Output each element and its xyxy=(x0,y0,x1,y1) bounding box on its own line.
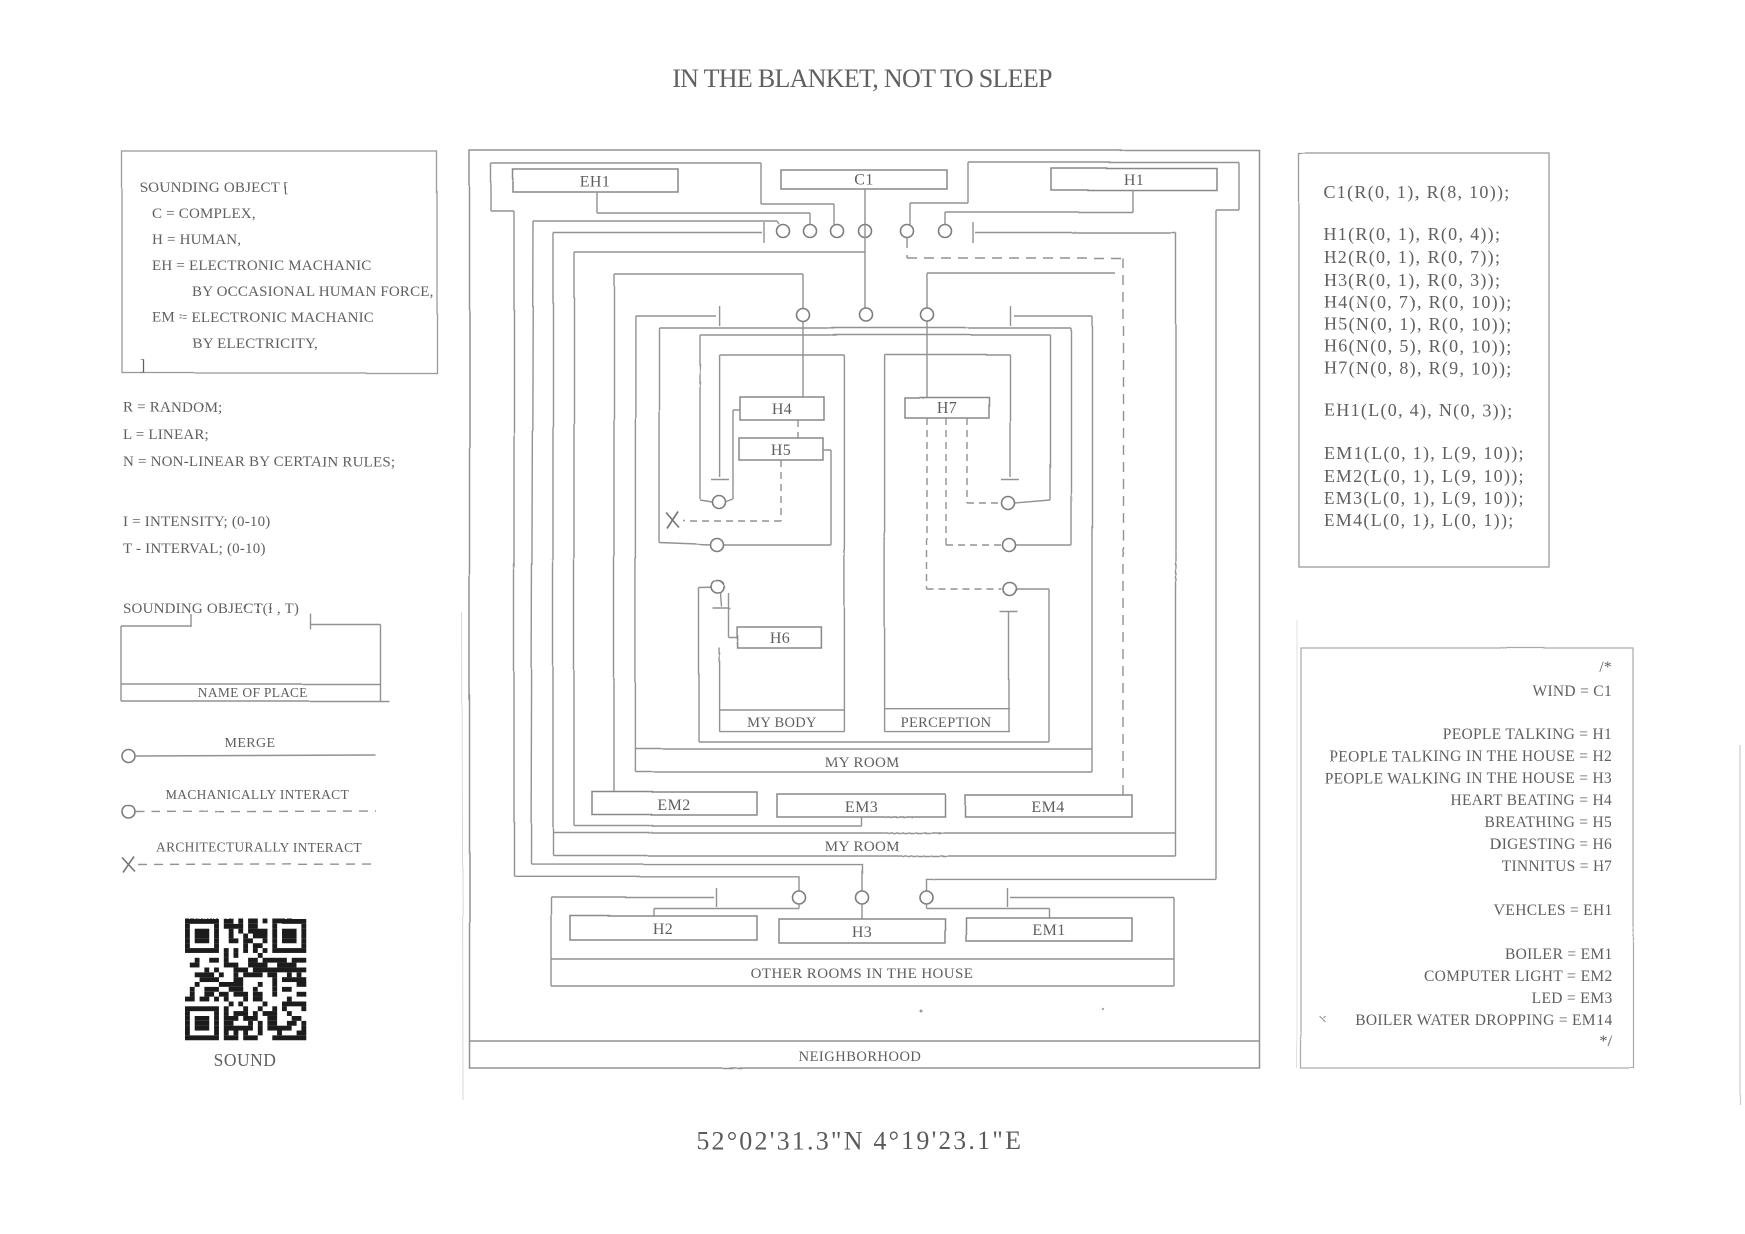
svg-text:PEOPLE WALKING IN THE HOUSE =: PEOPLE WALKING IN THE HOUSE = H3 xyxy=(1325,770,1612,787)
svg-text:OTHER ROOMS IN THE HOUSE: OTHER ROOMS IN THE HOUSE xyxy=(751,966,974,982)
svg-text:N = NON-LINEAR BY CERTAIN RULE: N = NON-LINEAR BY CERTAIN RULES; xyxy=(123,454,395,470)
svg-text:IN THE BLANKET, NOT TO SLEEP: IN THE BLANKET, NOT TO SLEEP xyxy=(672,64,1052,93)
svg-text:H3(R(0, 1), R(0, 3));: H3(R(0, 1), R(0, 3)); xyxy=(1324,270,1501,291)
svg-text:]: ] xyxy=(140,358,145,375)
svg-text:R = RANDOM;: R = RANDOM; xyxy=(123,400,222,416)
svg-text:BOILER WATER DROPPING = EM14: BOILER WATER DROPPING = EM14 xyxy=(1356,1012,1612,1029)
svg-text:C = COMPLEX,: C = COMPLEX, xyxy=(152,206,256,222)
svg-text:EM3(L(0, 1), L(9, 10));: EM3(L(0, 1), L(9, 10)); xyxy=(1324,488,1525,509)
svg-text:/*: /* xyxy=(1599,659,1612,676)
svg-text:NAME OF PLACE: NAME OF PLACE xyxy=(198,685,308,700)
svg-text:C1: C1 xyxy=(854,172,873,189)
svg-text:EM1(L(0, 1), L(9, 10));: EM1(L(0, 1), L(9, 10)); xyxy=(1324,443,1525,464)
svg-text:WIND = C1: WIND = C1 xyxy=(1533,683,1612,700)
svg-text:H7(N(0, 8), R(9, 10));: H7(N(0, 8), R(9, 10)); xyxy=(1324,358,1513,379)
svg-text:H4: H4 xyxy=(772,401,792,418)
svg-text:H2: H2 xyxy=(653,921,673,938)
svg-text:L = LINEAR;: L = LINEAR; xyxy=(123,427,209,443)
svg-text:MERGE: MERGE xyxy=(225,736,276,751)
svg-text:LED = EM3: LED = EM3 xyxy=(1532,990,1612,1007)
svg-text:EH = ELECTRONIC MACHANIC: EH = ELECTRONIC MACHANIC xyxy=(152,258,372,274)
svg-text:MY ROOM: MY ROOM xyxy=(825,755,899,771)
svg-text:52°02'31.3"N 4°19'23.1"E: 52°02'31.3"N 4°19'23.1"E xyxy=(696,1126,1023,1155)
svg-text:T - INTERVAL; (0-10): T - INTERVAL; (0-10) xyxy=(123,541,266,557)
svg-text:H3: H3 xyxy=(852,924,872,941)
svg-text:MACHANICALLY INTERACT: MACHANICALLY INTERACT xyxy=(165,787,350,802)
svg-text:HEART BEATING = H4: HEART BEATING = H4 xyxy=(1451,792,1612,809)
svg-text:TINNITUS = H7: TINNITUS = H7 xyxy=(1501,858,1612,875)
svg-text:H1(R(0, 1), R(0, 4));: H1(R(0, 1), R(0, 4)); xyxy=(1324,224,1501,245)
svg-text:H5: H5 xyxy=(771,442,791,459)
svg-text:SOUNDING OBJECT(I , T): SOUNDING OBJECT(I , T) xyxy=(123,601,300,617)
svg-text:H = HUMAN,: H = HUMAN, xyxy=(152,232,241,248)
svg-text:MY ROOM: MY ROOM xyxy=(825,839,899,855)
svg-text:H2(R(0, 1), R(0, 7));: H2(R(0, 1), R(0, 7)); xyxy=(1324,247,1501,268)
svg-text:PERCEPTION: PERCEPTION xyxy=(901,715,992,731)
svg-text:EH1: EH1 xyxy=(580,174,611,191)
svg-text:H6: H6 xyxy=(770,630,790,647)
svg-text:SOUNDING OBJECT [: SOUNDING OBJECT [ xyxy=(140,180,289,196)
svg-text:BREATHING = H5: BREATHING = H5 xyxy=(1485,814,1612,831)
svg-text:H1: H1 xyxy=(1124,172,1144,189)
svg-text:EM4: EM4 xyxy=(1031,799,1064,816)
svg-text:BY OCCASIONAL HUMAN FORCE,: BY OCCASIONAL HUMAN FORCE, xyxy=(192,284,434,300)
svg-text:I = INTENSITY; (0-10): I = INTENSITY; (0-10) xyxy=(123,514,271,530)
svg-text:H5(N(0, 1), R(0, 10));: H5(N(0, 1), R(0, 10)); xyxy=(1324,314,1513,335)
svg-text:VEHCLES = EH1: VEHCLES = EH1 xyxy=(1493,902,1612,919)
svg-text:H4(N(0, 7), R(0, 10));: H4(N(0, 7), R(0, 10)); xyxy=(1324,292,1513,313)
svg-text:EM1: EM1 xyxy=(1032,922,1065,939)
svg-text:*/: */ xyxy=(1599,1033,1612,1050)
svg-text:EM = ELECTRONIC MACHANIC: EM = ELECTRONIC MACHANIC xyxy=(152,310,374,326)
svg-text:PEOPLE TALKING = H1: PEOPLE TALKING = H1 xyxy=(1443,726,1612,743)
svg-text:EH1(L(0, 4), N(0, 3));: EH1(L(0, 4), N(0, 3)); xyxy=(1324,400,1514,421)
svg-text:PEOPLE TALKING IN THE HOUSE =: PEOPLE TALKING IN THE HOUSE = H2 xyxy=(1329,748,1612,765)
svg-text:ARCHITECTURALLY INTERACT: ARCHITECTURALLY INTERACT xyxy=(156,840,362,855)
svg-text:BY ELECTRICITY,: BY ELECTRICITY, xyxy=(192,336,318,352)
svg-text:MY BODY: MY BODY xyxy=(747,715,817,731)
svg-text:EM3: EM3 xyxy=(844,799,877,816)
svg-text:H6(N(0, 5), R(0, 10));: H6(N(0, 5), R(0, 10)); xyxy=(1324,336,1513,357)
svg-text:EM4(L(0, 1), L(0, 1));: EM4(L(0, 1), L(0, 1)); xyxy=(1324,510,1515,531)
svg-text:COMPUTER LIGHT = EM2: COMPUTER LIGHT = EM2 xyxy=(1424,968,1612,985)
svg-text:EM2(L(0, 1), L(9, 10));: EM2(L(0, 1), L(9, 10)); xyxy=(1324,466,1525,487)
svg-text:NEIGHBORHOOD: NEIGHBORHOOD xyxy=(799,1049,922,1065)
svg-text:BOILER = EM1: BOILER = EM1 xyxy=(1505,946,1612,963)
svg-text:C1(R(0, 1), R(8, 10));: C1(R(0, 1), R(8, 10)); xyxy=(1324,182,1511,203)
svg-text:H7: H7 xyxy=(937,400,957,417)
svg-text:SOUND: SOUND xyxy=(214,1050,277,1070)
svg-text:DIGESTING = H6: DIGESTING = H6 xyxy=(1490,836,1612,853)
svg-text:EM2: EM2 xyxy=(657,797,690,814)
